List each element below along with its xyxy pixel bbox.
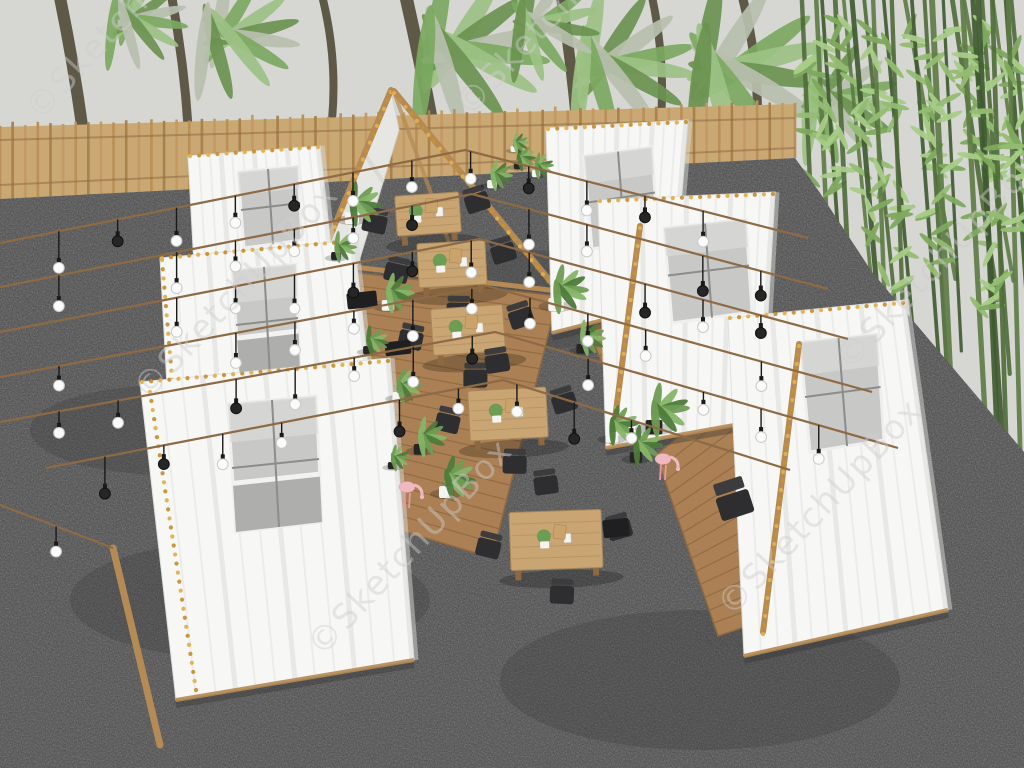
gold-bulb [162, 480, 166, 484]
gold-bulb [197, 153, 201, 157]
light-bulb [697, 286, 708, 297]
gold-bulb [184, 625, 188, 629]
gold-bulb [495, 216, 499, 220]
light-bulb [755, 290, 766, 301]
chair-back [551, 578, 573, 585]
gold-bulb [223, 250, 227, 254]
light-bulb [581, 205, 592, 216]
gold-bulb [656, 121, 660, 125]
gold-bulb [625, 198, 629, 202]
gold-bulb [633, 262, 637, 266]
gold-bulb [193, 679, 197, 683]
light-bulb [54, 380, 65, 391]
light-bulb [813, 453, 824, 464]
gold-bulb [632, 271, 636, 275]
gold-bulb [698, 195, 702, 199]
gold-bulb [234, 151, 238, 155]
light-bulb [290, 399, 301, 410]
gold-bulb [359, 361, 363, 365]
gold-bulb [298, 146, 302, 150]
gold-bulb [385, 98, 389, 102]
gold-bulb [790, 398, 794, 402]
gold-bulb [796, 353, 800, 357]
gold-bulb [846, 306, 850, 310]
gold-bulb [169, 525, 173, 529]
gold-bulb [377, 360, 381, 364]
gold-bulb [349, 362, 353, 366]
gold-bulb [518, 244, 522, 248]
gold-bulb [186, 634, 190, 638]
tent-fold [642, 198, 645, 441]
light-bulb [51, 546, 62, 557]
gold-bulb [421, 126, 425, 130]
gold-bulb [167, 516, 171, 520]
gold-bulb [354, 174, 358, 178]
light-bulb [698, 322, 709, 333]
gold-bulb [725, 194, 729, 198]
gold-bulb [634, 197, 638, 201]
light-bulb [158, 459, 169, 470]
gold-bulb [316, 145, 320, 149]
flamingo-body [399, 482, 415, 493]
gold-bulb [190, 661, 194, 665]
light-bulb [640, 351, 651, 362]
light-bulb [171, 236, 182, 247]
gold-bulb [762, 192, 766, 196]
light-bulb [100, 488, 111, 499]
gold-bulb [173, 552, 177, 556]
gold-bulb [629, 123, 633, 127]
gold-bulb [165, 322, 169, 326]
light-bulb [582, 246, 593, 257]
light-bulb [349, 371, 360, 382]
light-bulb [512, 406, 523, 417]
gold-bulb [161, 267, 165, 271]
gold-bulb [782, 461, 786, 465]
light-bulb [626, 433, 637, 444]
light-bulb [640, 212, 651, 223]
gold-bulb [629, 298, 633, 302]
gold-bulb [616, 198, 620, 202]
gold-bulb [160, 471, 164, 475]
gold-bulb [555, 126, 559, 130]
gold-bulb [279, 147, 283, 151]
light-bulb [582, 336, 593, 347]
flamingo-body [655, 454, 671, 465]
gold-bulb [728, 316, 732, 320]
gold-bulb [626, 316, 630, 320]
light-bulb [407, 266, 418, 277]
gold-bulb [598, 199, 602, 203]
gold-bulb [403, 105, 407, 109]
gold-bulb [795, 362, 799, 366]
gold-bulb [647, 122, 651, 126]
gold-bulb [158, 453, 162, 457]
gold-bulb [753, 193, 757, 197]
light-bulb [289, 303, 300, 314]
table-paper-bag [553, 524, 566, 539]
light-bulb [698, 404, 709, 415]
gold-bulb [164, 304, 168, 308]
gold-bulb [378, 115, 382, 119]
gold-bulb [398, 98, 402, 102]
light-bulb [231, 358, 242, 369]
gold-bulb [707, 194, 711, 198]
light-bulb [113, 417, 124, 428]
chair-seat [533, 475, 559, 496]
gold-bulb [213, 374, 217, 378]
gold-bulb [163, 489, 167, 493]
table-plant-pot [492, 415, 501, 422]
flamingo-leg [665, 465, 666, 480]
gold-bulb [783, 452, 787, 456]
gold-bulb [634, 253, 638, 257]
flamingo-leg [404, 492, 405, 508]
gold-bulb [734, 193, 738, 197]
gold-bulb [415, 119, 419, 123]
light-bulb [453, 403, 464, 414]
light-bulb [525, 318, 536, 329]
light-bulb [406, 182, 417, 193]
gold-bulb [270, 148, 274, 152]
gold-bulb [231, 372, 235, 376]
gold-bulb [762, 623, 766, 627]
gold-bulb [288, 147, 292, 151]
gold-bulb [361, 157, 365, 161]
gold-bulb [347, 191, 351, 195]
gold-bulb [196, 253, 200, 257]
light-bulb [53, 262, 64, 273]
gold-bulb [364, 149, 368, 153]
gold-bulb [574, 126, 578, 130]
light-bulb [466, 267, 477, 278]
light-bulb [171, 283, 182, 294]
gold-bulb [797, 344, 801, 348]
table-top [468, 387, 549, 441]
gold-bulb [620, 361, 624, 365]
gold-bulb [357, 166, 361, 170]
camp-chair [550, 578, 575, 604]
gold-bulb [215, 152, 219, 156]
light-bulb [640, 307, 651, 318]
gold-bulb [386, 359, 390, 363]
light-bulb [348, 196, 359, 207]
light-bulb [756, 432, 767, 443]
gold-bulb [791, 389, 795, 393]
chair-seat [484, 353, 511, 375]
gold-bulb [174, 561, 178, 565]
gold-bulb [620, 123, 624, 127]
gold-bulb [506, 230, 510, 234]
gold-bulb [666, 121, 670, 125]
light-bulb [583, 380, 594, 391]
table-top [417, 240, 487, 287]
light-bulb [569, 433, 580, 444]
gold-bulb [638, 122, 642, 126]
gold-bulb [176, 571, 180, 575]
gold-bulb [375, 124, 379, 128]
gold-bulb [638, 226, 642, 230]
light-bulb [394, 426, 405, 437]
gold-bulb [165, 498, 169, 502]
gold-bulb [187, 643, 191, 647]
gold-bulb [161, 276, 165, 280]
gold-bulb [787, 425, 791, 429]
light-bulb [523, 183, 534, 194]
gold-bulb [689, 195, 693, 199]
gold-bulb [771, 192, 775, 196]
gold-bulb [449, 161, 453, 165]
light-bulb [755, 328, 766, 339]
gold-bulb [627, 307, 631, 311]
gold-bulb [619, 370, 623, 374]
gold-bulb [746, 314, 750, 318]
gold-bulb [178, 254, 182, 258]
gold-bulb [776, 515, 780, 519]
gold-bulb [583, 125, 587, 129]
gold-bulb [314, 242, 318, 246]
gold-bulb [249, 371, 253, 375]
gold-bulb [180, 598, 184, 602]
gold-bulb [214, 251, 218, 255]
gold-bulb [819, 308, 823, 312]
gold-bulb [623, 343, 627, 347]
light-bulb [348, 323, 359, 334]
gold-bulb [786, 434, 790, 438]
gold-bulb [783, 311, 787, 315]
light-bulb [524, 277, 535, 288]
light-bulb [348, 233, 359, 244]
gold-bulb [777, 506, 781, 510]
gold-bulb [680, 196, 684, 200]
gold-bulb [240, 371, 244, 375]
gold-bulb [181, 607, 185, 611]
campsite-render: ©SketchUpBox©SketchUpBox©SketchUpBox©Ske… [0, 0, 1024, 768]
gold-bulb [179, 589, 183, 593]
gold-bulb [744, 193, 748, 197]
gold-bulb [392, 91, 396, 95]
flamingo-head [420, 495, 424, 499]
gold-bulb [763, 614, 767, 618]
gold-bulb [489, 209, 493, 213]
light-bulb [407, 220, 418, 231]
gold-bulb [222, 373, 226, 377]
gold-bulb [592, 125, 596, 129]
gold-bulb [188, 652, 192, 656]
gold-bulb [185, 376, 189, 380]
gold-bulb [541, 272, 545, 276]
light-bulb [407, 331, 418, 342]
gold-bulb [191, 670, 195, 674]
light-bulb [230, 217, 241, 228]
gold-bulb [206, 153, 210, 157]
gold-bulb [622, 352, 626, 356]
gold-bulb [224, 151, 228, 155]
gold-bulb [778, 497, 782, 501]
gold-bulb [160, 258, 164, 262]
gold-bulb [779, 488, 783, 492]
gold-bulb [535, 265, 539, 269]
gold-bulb [323, 241, 327, 245]
gold-bulb [529, 258, 533, 262]
gold-bulb [828, 307, 832, 311]
gold-bulb [737, 315, 741, 319]
light-bulb [524, 239, 535, 250]
table-paper-bag [465, 314, 478, 329]
gold-bulb [512, 237, 516, 241]
gold-bulb [780, 479, 784, 483]
gold-bulb [773, 312, 777, 316]
light-bulb [276, 438, 287, 449]
gold-bulb [810, 309, 814, 313]
gold-bulb [188, 154, 192, 158]
camp-chair [532, 468, 559, 496]
gold-bulb [340, 363, 344, 367]
light-bulb [756, 381, 767, 392]
light-bulb [466, 303, 477, 314]
gold-bulb [855, 305, 859, 309]
gold-bulb [630, 289, 634, 293]
gold-bulb [155, 435, 159, 439]
light-bulb [53, 301, 64, 312]
gold-bulb [322, 364, 326, 368]
gold-bulb [261, 149, 265, 153]
gold-bulb [187, 253, 191, 257]
gold-bulb [610, 124, 614, 128]
gold-bulb [205, 252, 209, 256]
gold-bulb [204, 374, 208, 378]
gold-bulb [455, 168, 459, 172]
gold-bulb [785, 443, 789, 447]
black-crate [602, 518, 630, 539]
gold-bulb [169, 255, 173, 259]
light-bulb [231, 403, 242, 414]
gold-bulb [617, 388, 621, 392]
gold-bulb [438, 147, 442, 151]
gold-bulb [761, 632, 765, 636]
chair-seat [550, 585, 575, 604]
gold-bulb [307, 146, 311, 150]
gold-bulb [792, 310, 796, 314]
light-bulb [467, 353, 478, 364]
gold-bulb [194, 688, 198, 692]
table-plant-pot [540, 541, 549, 548]
gold-bulb [170, 534, 174, 538]
gold-bulb [426, 133, 430, 137]
light-bulb [289, 345, 300, 356]
gold-bulb [616, 397, 620, 401]
gold-bulb [601, 124, 605, 128]
gold-bulb [162, 286, 166, 290]
gold-bulb [801, 310, 805, 314]
light-bulb [698, 236, 709, 247]
gold-bulb [252, 149, 256, 153]
gold-bulb [781, 470, 785, 474]
gold-bulb [636, 244, 640, 248]
gold-bulb [624, 334, 628, 338]
gold-bulb [792, 380, 796, 384]
gold-bulb [501, 223, 505, 227]
table-top [509, 509, 603, 570]
gold-bulb [368, 360, 372, 364]
gold-bulb [461, 175, 465, 179]
light-bulb [465, 173, 476, 184]
gold-bulb [789, 407, 793, 411]
gold-bulb [177, 580, 181, 584]
gold-bulb [382, 107, 386, 111]
gold-bulb [546, 127, 550, 131]
chair-back [448, 296, 470, 302]
gold-bulb [172, 543, 176, 547]
gold-bulb [165, 313, 169, 317]
gold-bulb [195, 375, 199, 379]
gold-bulb [675, 120, 679, 124]
gold-bulb [166, 507, 170, 511]
gold-bulb [432, 140, 436, 144]
gold-bulb [765, 596, 769, 600]
flamingo-leg [409, 493, 410, 508]
gold-bulb [371, 132, 375, 136]
gold-bulb [163, 295, 167, 299]
light-bulb [348, 287, 359, 298]
gold-bulb [716, 194, 720, 198]
gold-bulb [764, 605, 768, 609]
light-bulb [54, 427, 65, 438]
gold-bulb [684, 120, 688, 124]
gold-bulb [331, 364, 335, 368]
glamping-scene-svg: ©SketchUpBox©SketchUpBox©SketchUpBox©Ske… [0, 0, 1024, 768]
gold-bulb [564, 126, 568, 130]
light-bulb [217, 459, 228, 470]
gold-bulb [618, 379, 622, 383]
gold-bulb [153, 426, 157, 430]
flamingo-leg [660, 464, 661, 480]
gold-bulb [607, 199, 611, 203]
flamingo-head [676, 467, 680, 471]
gold-bulb [183, 616, 187, 620]
gold-bulb [152, 417, 156, 421]
table-paper-bag [449, 248, 462, 263]
light-bulb [408, 376, 419, 387]
gold-bulb [837, 306, 841, 310]
gold-bulb [243, 150, 247, 154]
light-bulb [112, 236, 123, 247]
gold-bulb [151, 408, 155, 412]
gold-bulb [368, 141, 372, 145]
table-plant-pot [436, 265, 445, 272]
gold-bulb [409, 112, 413, 116]
gold-bulb [671, 196, 675, 200]
